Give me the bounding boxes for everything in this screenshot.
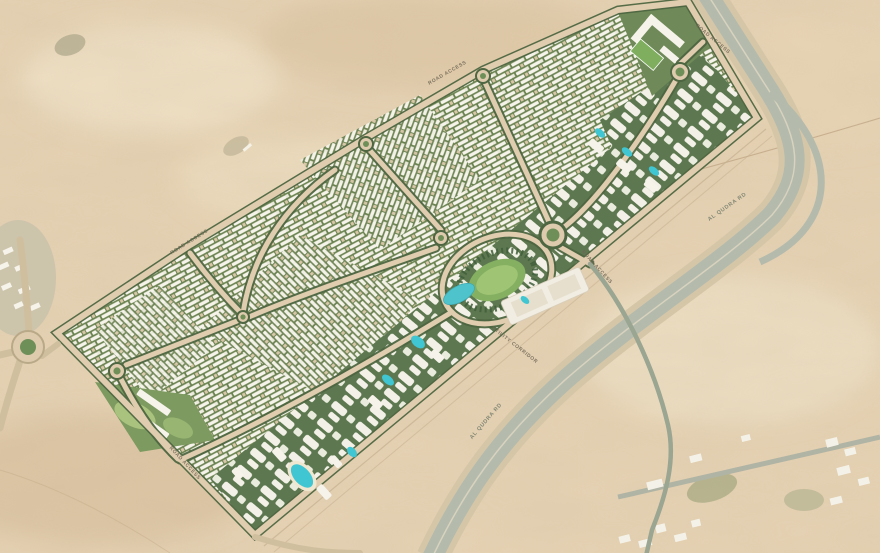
masterplan-screenshot: ROAD ACCESS ROAD ACCESS ROAD ACCESS ROAD…: [0, 0, 880, 553]
west-roundabout: [12, 331, 44, 363]
grand-roundabout: [540, 222, 566, 248]
masterplan-map: ROAD ACCESS ROAD ACCESS ROAD ACCESS ROAD…: [0, 0, 880, 553]
